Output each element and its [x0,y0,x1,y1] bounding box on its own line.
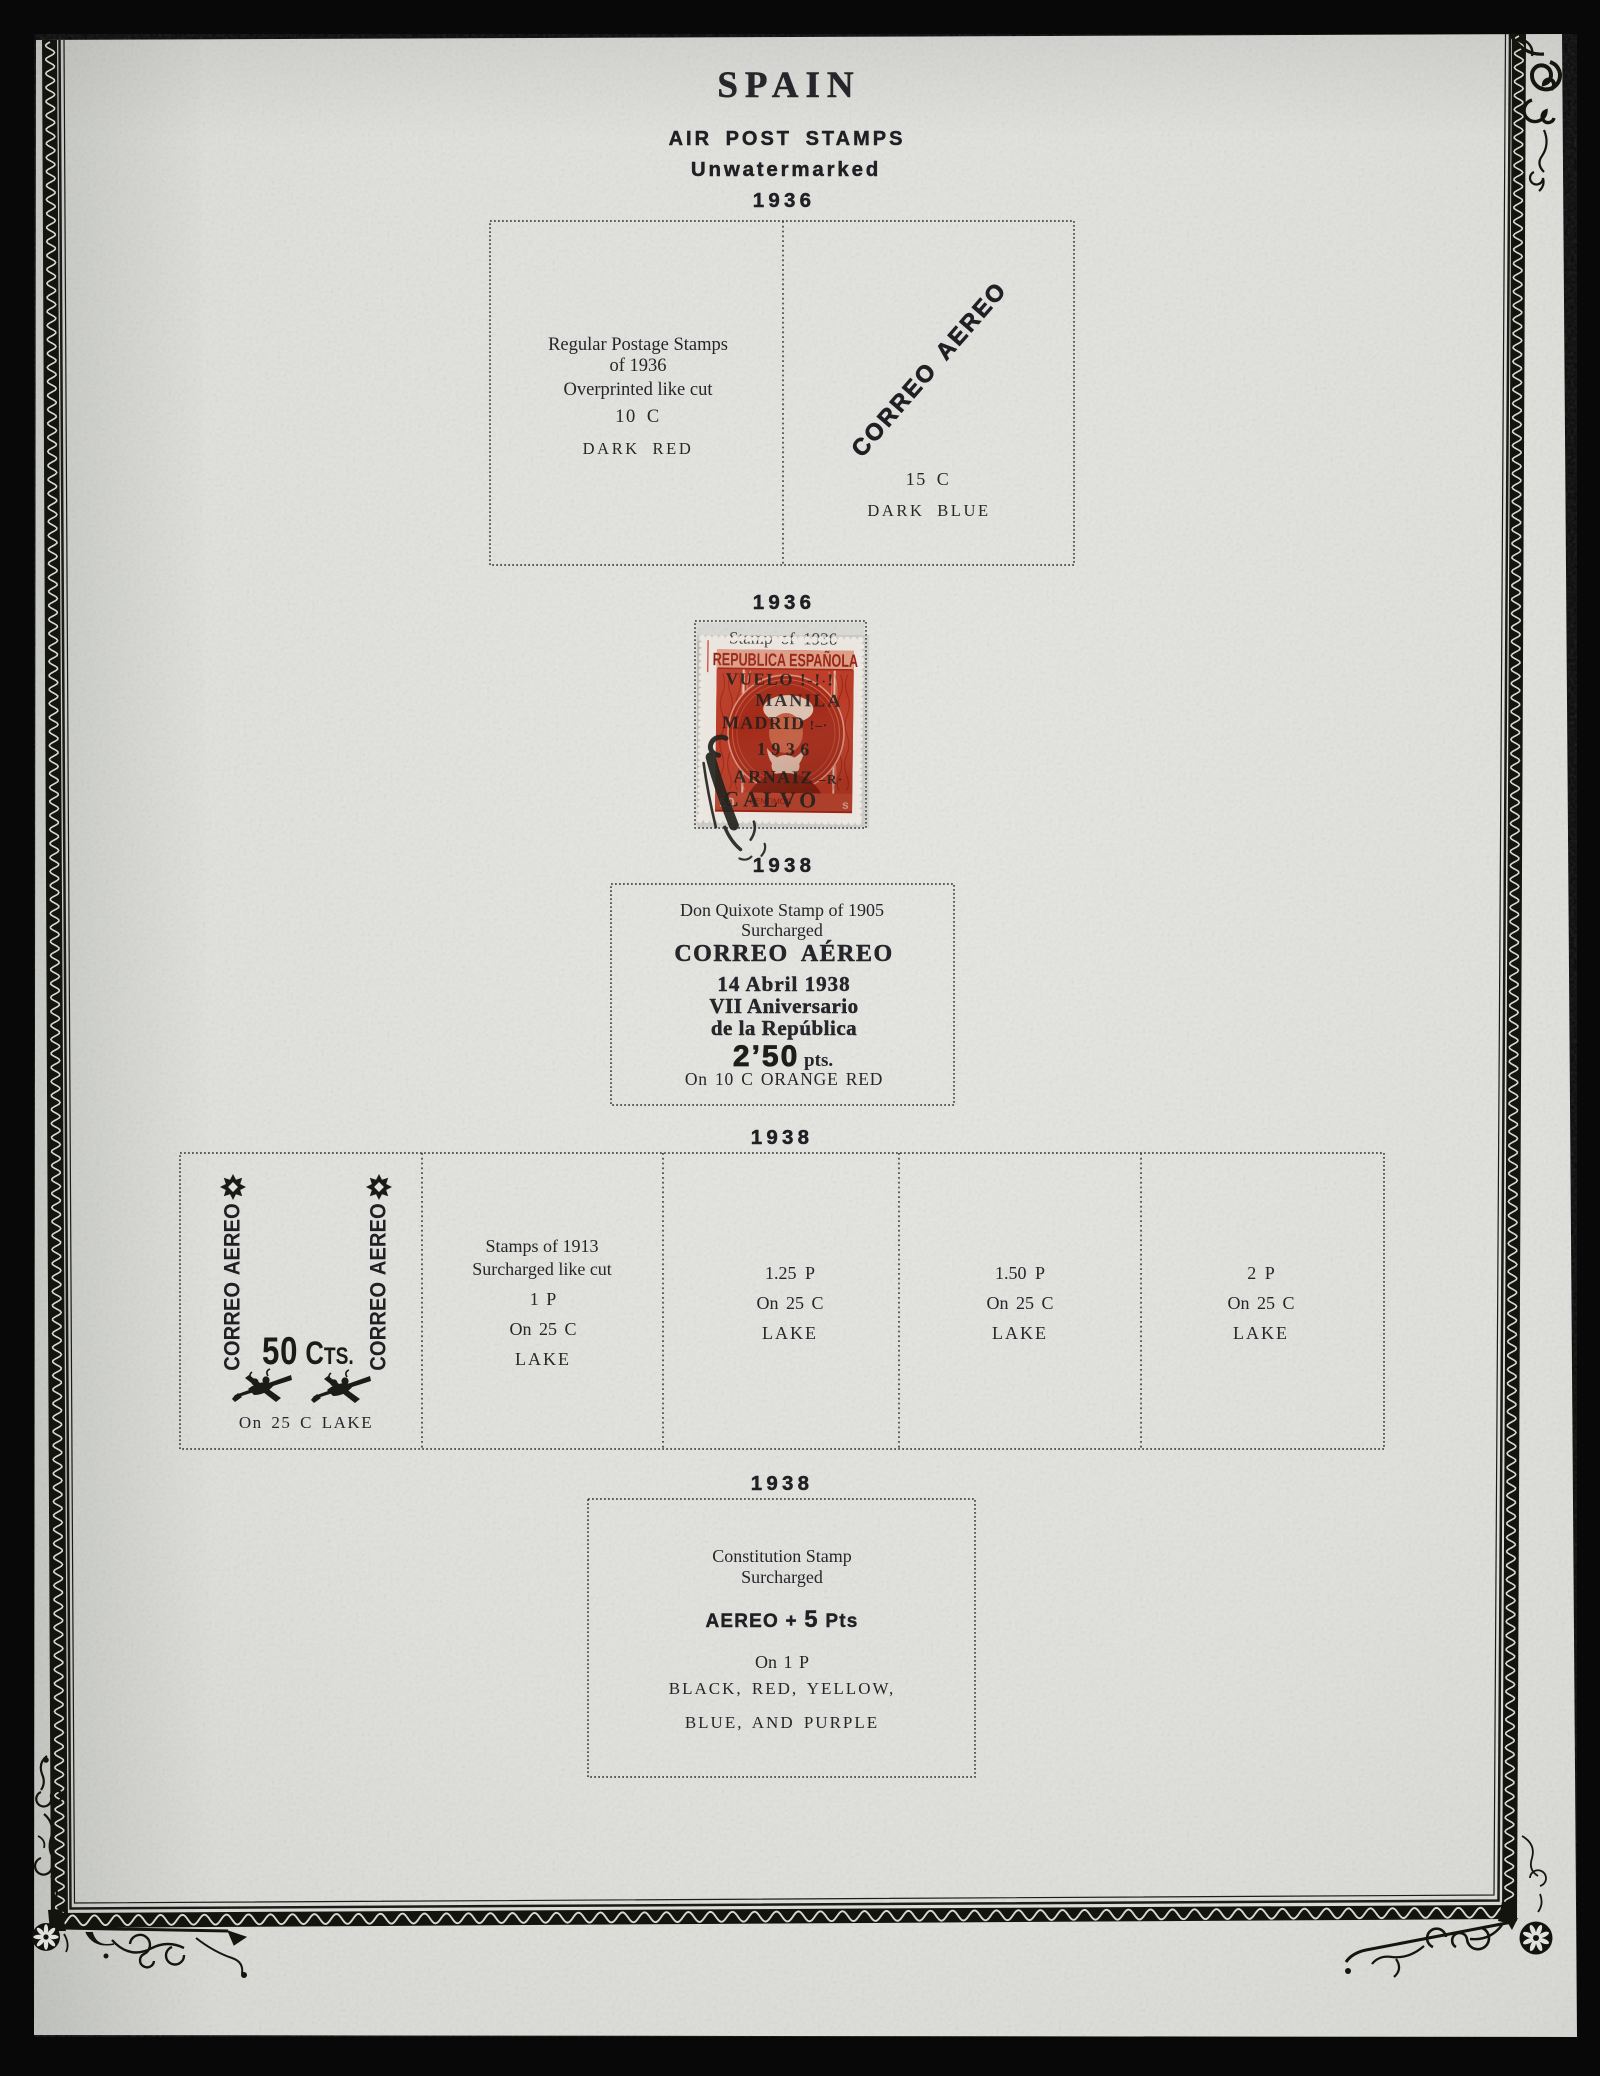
svg-text:On 25 C: On 25 C [986,1293,1053,1313]
svg-text:Constitution Stamp: Constitution Stamp [712,1546,852,1566]
svg-text:1 P: 1 P [530,1289,557,1309]
svg-text:15 C: 15 C [906,469,951,489]
svg-text:On 25 C: On 25 C [756,1293,823,1313]
svg-text:1938: 1938 [753,854,815,877]
svg-text:BLACK, RED, YELLOW,: BLACK, RED, YELLOW, [669,1679,895,1698]
svg-text:AEREO + 5 Pts: AEREO + 5 Pts [705,1606,858,1633]
svg-text:de la República: de la República [711,1016,857,1040]
svg-text:LAKE: LAKE [992,1323,1048,1343]
svg-text:Surcharged: Surcharged [741,920,823,940]
svg-text:LAKE: LAKE [515,1349,571,1369]
svg-text:CALVO: CALVO [723,786,820,812]
svg-text:SPAIN: SPAIN [717,65,860,106]
svg-text:CORREO AEREO: CORREO AEREO [221,1203,245,1370]
svg-text:1.25 P: 1.25 P [765,1263,815,1283]
svg-text:On 25 C: On 25 C [509,1319,576,1339]
svg-text:1938: 1938 [751,1472,813,1495]
svg-text:Overprinted like cut: Overprinted like cut [564,380,714,400]
svg-text:DARK RED: DARK RED [583,439,694,458]
svg-text:10 C: 10 C [615,407,660,427]
svg-text:Unwatermarked: Unwatermarked [691,158,881,181]
svg-text:VUELO !-!·!: VUELO !-!·! [726,669,835,689]
svg-text:1936: 1936 [753,189,815,212]
svg-text:1.50 P: 1.50 P [995,1263,1045,1283]
svg-text:AIR POST STAMPS: AIR POST STAMPS [669,128,906,150]
svg-text:1938: 1938 [751,1126,813,1149]
svg-text:1936: 1936 [753,591,815,614]
svg-text:1936: 1936 [757,739,815,760]
svg-text:CORREO AEREO: CORREO AEREO [367,1203,391,1370]
svg-text:MANILA: MANILA [755,690,842,711]
svg-text:DARK BLUE: DARK BLUE [867,501,990,520]
svg-text:Don Quixote Stamp of 1905: Don Quixote Stamp of 1905 [680,900,884,920]
svg-text:BLUE, AND PURPLE: BLUE, AND PURPLE [685,1713,879,1732]
svg-text:On 25 C LAKE: On 25 C LAKE [239,1413,373,1432]
svg-text:LAKE: LAKE [762,1323,818,1343]
svg-text:Surcharged like cut: Surcharged like cut [472,1259,612,1279]
svg-text:Stamps of 1913: Stamps of 1913 [485,1236,598,1256]
svg-text:On 1 P: On 1 P [755,1652,809,1672]
svg-text:VII Aniversario: VII Aniversario [709,994,858,1018]
svg-text:On 10 C ORANGE RED: On 10 C ORANGE RED [685,1069,883,1089]
svg-text:14 Abril 1938: 14 Abril 1938 [717,972,850,996]
svg-text:CORREO AÉREO: CORREO AÉREO [674,941,893,967]
svg-text:On 25 C: On 25 C [1227,1293,1294,1313]
svg-text:of 1936: of 1936 [609,356,666,376]
svg-text:Regular Postage Stamps: Regular Postage Stamps [548,335,728,355]
svg-text:2 P: 2 P [1247,1263,1275,1283]
svg-text:LAKE: LAKE [1233,1323,1289,1343]
svg-text:Surcharged: Surcharged [741,1567,823,1587]
